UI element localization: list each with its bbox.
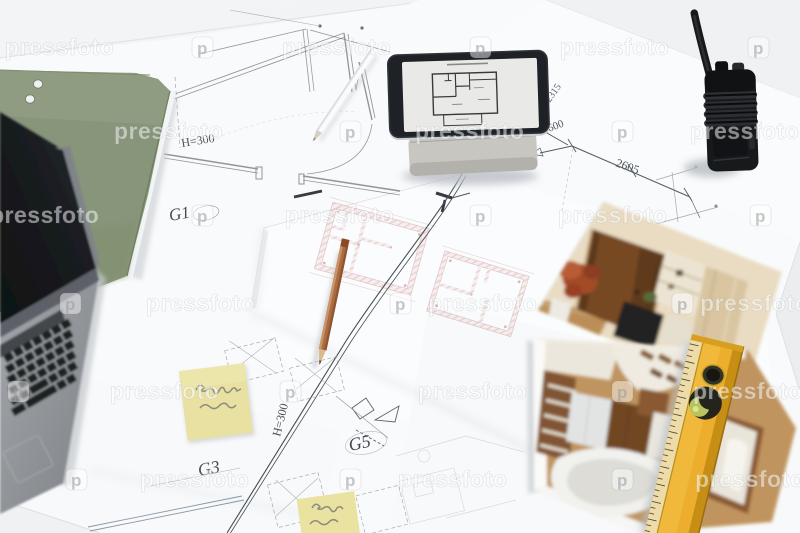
svg-text:p: p	[345, 123, 355, 142]
svg-text:pressfoto: pressfoto	[558, 202, 667, 228]
svg-text:pressfoto: pressfoto	[0, 202, 99, 228]
svg-text:pressfoto: pressfoto	[110, 378, 219, 404]
svg-text:p: p	[475, 207, 485, 226]
svg-text:pressfoto: pressfoto	[690, 118, 799, 144]
svg-text:p: p	[71, 471, 81, 490]
svg-text:pressfoto: pressfoto	[282, 34, 391, 60]
svg-text:p: p	[617, 123, 627, 142]
svg-text:p: p	[755, 207, 765, 226]
svg-text:pressfoto: pressfoto	[415, 118, 524, 144]
svg-text:p: p	[475, 39, 485, 58]
svg-text:pressfoto: pressfoto	[285, 202, 394, 228]
svg-text:pressfoto: pressfoto	[560, 34, 669, 60]
svg-text:p: p	[617, 383, 627, 402]
svg-text:p: p	[65, 295, 75, 314]
svg-text:pressfoto: pressfoto	[700, 290, 800, 316]
svg-text:pressfoto: pressfoto	[114, 118, 223, 144]
svg-text:p: p	[753, 39, 763, 58]
svg-text:G1: G1	[167, 203, 191, 225]
svg-text:p: p	[197, 39, 207, 58]
svg-text:pressfoto: pressfoto	[428, 290, 537, 316]
svg-text:p: p	[345, 471, 355, 490]
svg-text:pressfoto: pressfoto	[140, 466, 249, 492]
svg-text:pressfoto: pressfoto	[695, 466, 800, 492]
svg-text:p: p	[677, 295, 687, 314]
svg-text:pressfoto: pressfoto	[418, 378, 527, 404]
svg-text:p: p	[617, 471, 627, 490]
svg-text:pressfoto: pressfoto	[693, 378, 800, 404]
svg-text:pressfoto: pressfoto	[5, 34, 114, 60]
svg-text:p: p	[13, 383, 23, 402]
svg-text:p: p	[395, 295, 405, 314]
svg-text:p: p	[197, 207, 207, 226]
svg-text:pressfoto: pressfoto	[398, 466, 507, 492]
svg-text:p: p	[285, 383, 295, 402]
svg-text:pressfoto: pressfoto	[146, 290, 255, 316]
